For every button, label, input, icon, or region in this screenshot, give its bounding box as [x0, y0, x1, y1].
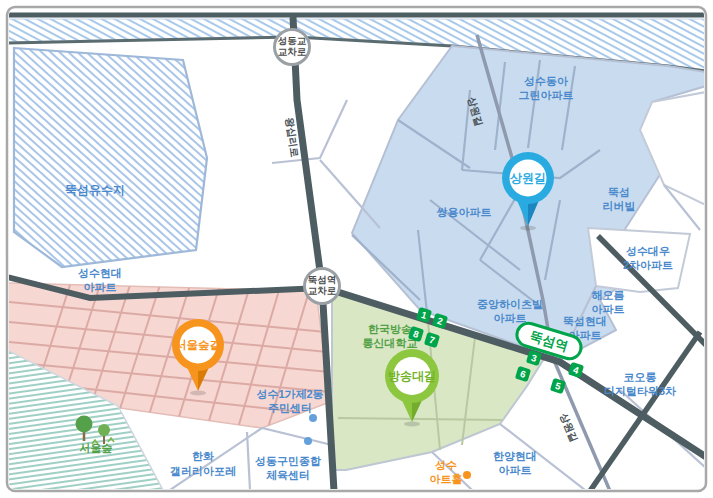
label-haeoreum-1: 해오름	[592, 289, 625, 301]
map-svg: 왕십리로 상원길 상원길 뚝섬유수지 성수현대 아파트 성수동아 그린아파트 쌍…	[0, 0, 713, 498]
label-ssangyong-apt: 쌍용아파트	[437, 206, 492, 218]
label-knou-2: 통신대학교	[363, 337, 418, 349]
label-riverville-1: 뚝섬	[608, 186, 630, 198]
label-daewoo-2: 2차아파트	[623, 259, 673, 271]
label-seongsu-donga-1: 성수동아	[524, 75, 568, 87]
label-sports-center-2: 체육센터	[266, 469, 310, 481]
intersection-ttukseom: 뚝섬역 교차로	[305, 269, 340, 304]
svg-text:뚝섬역: 뚝섬역	[308, 274, 337, 285]
label-seoul-forest: 서울숲	[80, 442, 113, 454]
dot-art-hall	[463, 471, 471, 479]
reservoir-area	[14, 48, 207, 267]
label-art-hall-1: 성수	[435, 459, 457, 471]
label-art-hall-2: 아트홀	[430, 473, 463, 485]
svg-text:방송대길: 방송대길	[388, 369, 436, 383]
dot-sports-center	[304, 437, 312, 445]
label-galleria-foret-1: 한화	[192, 450, 214, 462]
label-riverville-2: 리버빌	[603, 200, 636, 212]
dot-community-center	[309, 414, 317, 422]
svg-text:교차로: 교차로	[308, 285, 337, 296]
svg-text:교차로: 교차로	[278, 46, 307, 57]
label-galleria-foret-2: 갤러리아포레	[170, 465, 236, 477]
intersection-seongdonggyo: 성동교 교차로	[275, 30, 310, 65]
label-ttukseom-hyundai-1: 뚝섬현대	[563, 315, 607, 327]
label-sports-center-1: 성동구민종합	[255, 455, 321, 467]
label-haeoreum-2: 아파트	[592, 303, 625, 315]
label-hanyang-hyundai-2: 아파트	[499, 464, 532, 476]
label-seongsu-hyundai-2: 아파트	[84, 281, 117, 293]
label-kolon-1: 코오롱	[624, 371, 657, 383]
svg-text:성동교: 성동교	[278, 35, 307, 46]
label-seongsu-hyundai-1: 성수현대	[78, 267, 122, 279]
svg-text:서울숲길: 서울숲길	[175, 339, 221, 351]
label-kolon-2: 디지털타워3차	[604, 385, 676, 397]
label-heights-2: 아파트	[494, 312, 527, 324]
label-hanyang-hyundai-1: 한양현대	[493, 450, 537, 462]
label-heights-1: 중앙하이츠빌	[477, 298, 543, 310]
label-daewoo-1: 성수대우	[626, 245, 670, 257]
label-seongsu-donga-2: 그린아파트	[519, 89, 574, 101]
label-ttukseom-reservoir: 뚝섬유수지	[65, 183, 125, 197]
svg-text:상원길: 상원길	[509, 171, 546, 185]
map-canvas: 왕십리로 상원길 상원길 뚝섬유수지 성수현대 아파트 성수동아 그린아파트 쌍…	[0, 0, 713, 498]
label-community-center-1: 성수1가제2동	[256, 388, 323, 400]
label-knou-1: 한국방송	[368, 323, 412, 335]
label-community-center-2: 주민센터	[268, 402, 312, 414]
